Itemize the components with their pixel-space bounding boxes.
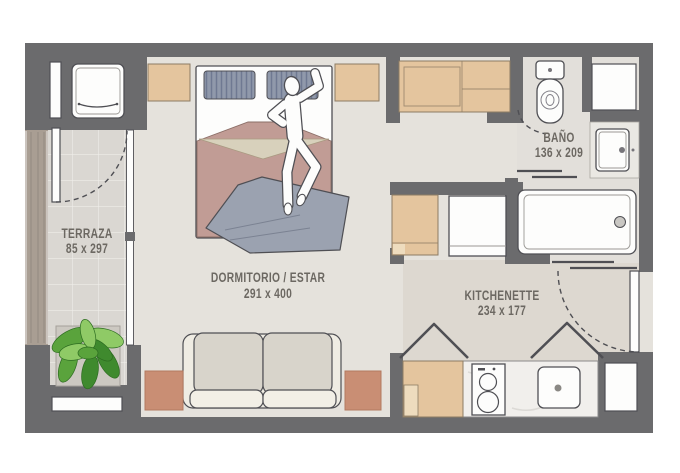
shelf-left-of-bed: [148, 64, 190, 101]
laundry-window: [50, 62, 61, 118]
planter-strip: [25, 130, 48, 345]
pillow-left: [204, 71, 255, 99]
wall-kitchen-left: [390, 353, 403, 417]
side-table-left: [145, 371, 183, 410]
wall-nook-top: [390, 182, 523, 195]
side-table-right: [345, 371, 381, 410]
terraza-dims: 85 x 297: [66, 241, 108, 257]
floor-plan: TERRAZA 85 x 297 DORMITORIO / ESTAR 291 …: [0, 0, 680, 473]
sofa: [183, 333, 341, 408]
bano-name: BAÑO: [543, 128, 574, 145]
closet: [392, 195, 438, 255]
washing-machine: [72, 64, 124, 118]
sink-faucet: [619, 147, 625, 153]
dormitorio-name: DORMITORIO / ESTAR: [211, 270, 325, 286]
bathroom-duct-box: [592, 64, 636, 110]
terraza-name: TERRAZA: [61, 226, 112, 242]
sofa-seat-cushion-left: [190, 390, 263, 408]
kitchen-cabinet-drawer: [404, 385, 418, 416]
wall-bath-box-bottom: [590, 110, 639, 122]
glass-mullion: [125, 232, 135, 241]
plant: [48, 318, 126, 390]
entry-door-leaf: [630, 271, 639, 352]
bathroom-sink: [590, 122, 639, 178]
person-foot-left: [284, 203, 292, 215]
wall-right-upper: [639, 43, 653, 272]
sofa-back-cushion-right: [263, 333, 332, 394]
refrigerator: [449, 196, 506, 256]
wardrobe: [399, 61, 510, 112]
wall-bath-box-left: [582, 57, 592, 112]
terrace-glass-wall: [125, 130, 135, 345]
shelf-right-of-bed: [335, 64, 379, 101]
wall-terrace-divider-lower: [127, 345, 141, 417]
kitchenette-dims: 234 x 177: [478, 303, 526, 319]
dormitorio-dims: 291 x 400: [244, 286, 292, 302]
wall-bottom: [25, 417, 653, 433]
sofa-seat-cushion-right: [263, 390, 336, 408]
label-terraza: TERRAZA 85 x 297: [61, 226, 112, 257]
terrace-door-leaf: [52, 128, 60, 202]
cooktop: [472, 364, 505, 415]
tub-drain: [615, 217, 626, 228]
kitchen-sink-drain: [555, 385, 562, 392]
kitchen-window: [605, 363, 637, 411]
terrace-bottom-window: [52, 397, 122, 411]
wall-wardrobe-right: [510, 57, 523, 110]
bed: [196, 66, 349, 253]
kitchen-sink: [538, 367, 580, 408]
sofa-back-cushion-left: [194, 333, 263, 394]
kitchenette-name: KITCHENETTE: [464, 288, 539, 304]
toilet: [536, 61, 564, 123]
wall-bedroom-right-top: [386, 57, 400, 123]
floor-plan-page: TERRAZA 85 x 297 DORMITORIO / ESTAR 291 …: [0, 0, 680, 473]
bano-dims: 136 x 209: [535, 145, 583, 161]
bathtub: [518, 190, 636, 254]
